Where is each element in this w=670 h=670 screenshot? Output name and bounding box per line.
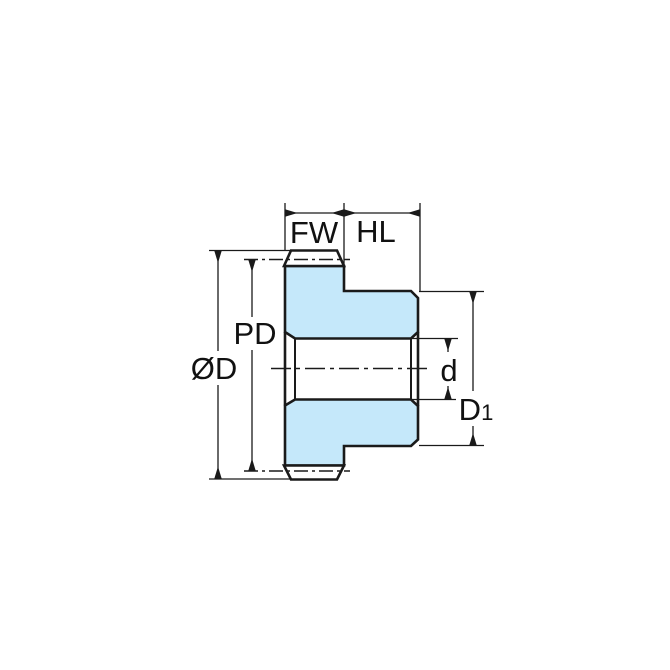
hub-diameter-label-subscript: 1 xyxy=(481,400,493,425)
diagram-canvas: FW HL ØD PD d D1 xyxy=(0,0,670,670)
bore-diameter-label: d xyxy=(440,353,457,388)
bottom-tooth-profile xyxy=(284,466,344,480)
top-tooth-profile xyxy=(284,251,344,267)
face-width-label: FW xyxy=(290,215,339,250)
outside-diameter-label: ØD xyxy=(191,351,238,386)
gear-dimension-diagram: FW HL ØD PD d D1 xyxy=(0,0,670,670)
gear-upper-body-section xyxy=(285,266,418,339)
pitch-diameter-label: PD xyxy=(233,316,276,351)
gear-cross-section xyxy=(284,251,418,480)
hub-diameter-label-main: D xyxy=(459,392,481,427)
gear-lower-body-section xyxy=(285,400,418,466)
hub-length-label: HL xyxy=(356,214,396,249)
